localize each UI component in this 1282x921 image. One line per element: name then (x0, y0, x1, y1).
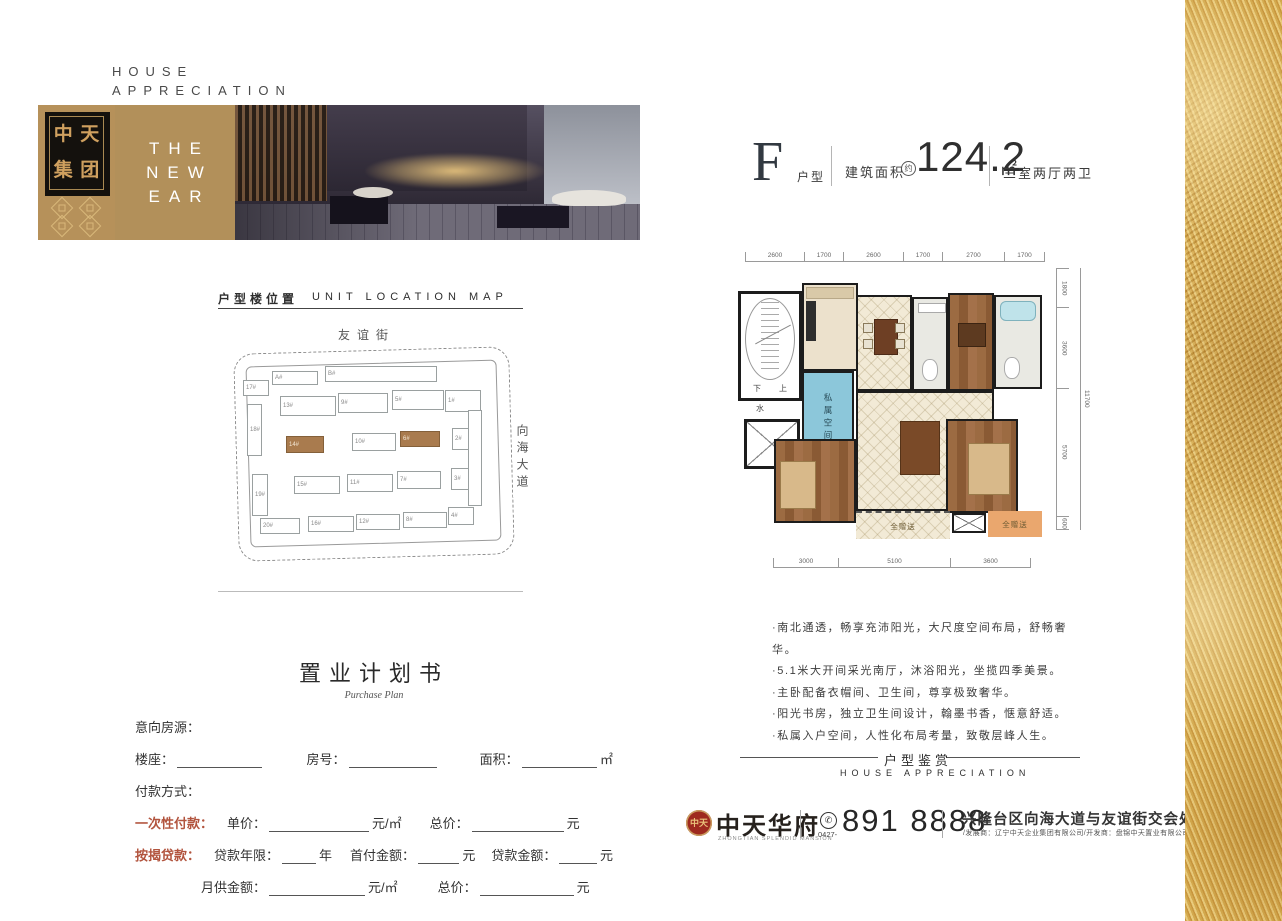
loan-amount-label: 贷款金额： (491, 845, 556, 864)
developer-line: /发展商：辽宁中天企业集团有限公司/开发商：盘锦中天置业有限公司 (963, 828, 1190, 838)
monthly-suffix: 元/㎡ (368, 877, 398, 896)
unit-type-label: 户型 (797, 168, 825, 185)
purchase-plan-form: 置业计划书 Purchase Plan 意向房源： 楼座： 房号： 面积：㎡ 付… (135, 656, 613, 909)
interior-courtyard-photo (235, 105, 640, 240)
feature-item: ·主卧配备衣帽间、卫生间，尊享极致奢华。 (772, 683, 1072, 705)
gold-sculpture-glow (365, 153, 545, 189)
map-building: 18# (247, 404, 262, 456)
approx-circle-icon: 约 (901, 161, 916, 176)
bedroom-left (774, 439, 856, 523)
form-title: 置业计划书 (135, 656, 613, 688)
map-bottom-rule (218, 591, 523, 592)
project-address: 兴隆台区向海大道与友谊街交会处 (962, 808, 1195, 829)
unit-letter: F (752, 134, 783, 190)
master-bedroom (946, 419, 1018, 513)
payment-label: 付款方式： (135, 781, 200, 800)
mortgage-row1: 按揭贷款： 贷款年限：年 首付金额：元 贷款金额：元 (135, 845, 613, 864)
down-payment-suffix: 元 (462, 845, 475, 864)
brand-seal-icon: 中天 (686, 810, 712, 836)
banner-line: NEW (137, 163, 213, 183)
map-building: 4# (448, 507, 474, 525)
banner-line: THE (140, 139, 210, 159)
map-building: 19# (252, 474, 268, 516)
site-map: 17# A# B# 1# 13# 9# 5# 18# 14# 10# 6# 2#… (236, 350, 512, 558)
loan-years-field (282, 850, 316, 864)
map-building: 5# (392, 390, 444, 410)
form-subtitle: Purchase Plan (135, 690, 613, 701)
area-field (522, 754, 597, 768)
divider-line (947, 757, 1080, 758)
house-appreciation-heading: HOUSE APPRECIATION (112, 62, 292, 100)
table-silhouette (497, 206, 569, 228)
phone-area-code: 0427- (818, 830, 837, 839)
dining-room (856, 295, 912, 391)
map-building: 9# (338, 393, 388, 413)
map-building-unlabeled (468, 410, 482, 506)
window-box (952, 513, 986, 533)
monthly-field (269, 882, 365, 896)
logo-char: 集 (54, 158, 73, 184)
bathroom (912, 297, 948, 391)
mortgage-label: 按揭贷款： (135, 845, 200, 864)
total2-field (480, 882, 574, 896)
unit-row: 楼座： 房号： 面积：㎡ (135, 749, 613, 768)
divider-line (740, 757, 878, 758)
map-building-highlighted: 6# (400, 431, 440, 447)
area-suffix: ㎡ (600, 749, 613, 768)
map-building: A# (272, 371, 318, 385)
floorplan-top-dimensions: 2600 1700 2600 1700 2700 1700 (745, 252, 1045, 262)
area-prefix-label: 建筑面积 (845, 162, 905, 181)
floorplan-right-dimensions: 1800 3600 5700 600 (1056, 268, 1069, 530)
feature-list: ·南北通透，畅享充沛阳光，大尺度空间布局，舒畅奢华。 ·5.1米大开间采光南厅，… (772, 618, 1072, 747)
unit-price-field (269, 818, 369, 832)
footer-divider (942, 810, 943, 838)
master-bathroom (994, 295, 1042, 389)
loan-years-suffix: 年 (319, 845, 332, 864)
balcony-left: 全赠送 (856, 511, 950, 539)
map-building: 10# (352, 433, 396, 451)
map-building: 11# (347, 474, 393, 492)
water-label: 水 (756, 403, 764, 414)
building-label: 楼座： (135, 749, 174, 768)
divider (831, 146, 832, 186)
street-label-youyi: 友谊街 (338, 326, 395, 343)
loan-amount-field (559, 850, 597, 864)
unit-price-label: 单价： (227, 813, 266, 832)
street-label-xianghai: 向海大道 (514, 424, 531, 492)
total-price-label: 总价： (430, 813, 469, 832)
map-building: 16# (308, 516, 354, 532)
area-label: 面积： (480, 749, 519, 768)
gold-texture-strip (1185, 0, 1282, 921)
payment-row: 付款方式： (135, 781, 613, 800)
stairwell: 下 上 (738, 291, 802, 401)
map-title-cn: 户型楼位置 (218, 290, 298, 307)
down-payment-label: 首付金额： (350, 845, 415, 864)
map-title-en: UNIT LOCATION MAP (312, 291, 508, 303)
rooms-description: 三室两厅两卫 (1003, 163, 1093, 182)
feature-item: ·5.1米大开间采光南厅，沐浴阳光，坐揽四季美景。 (772, 661, 1072, 683)
map-building: 8# (403, 512, 447, 528)
brand-subtitle: ZHONGTIAN SPLENDID MANSION (718, 836, 833, 842)
map-building: 1# (445, 390, 481, 412)
logo-char: 团 (80, 158, 99, 184)
total2-label: 总价： (438, 877, 477, 896)
onetime-row: 一次性付款： 单价：元/㎡ 总价：元 (135, 813, 613, 832)
total-price-suffix: 元 (567, 813, 580, 832)
map-building: 7# (397, 471, 441, 489)
map-title-rule (218, 308, 523, 309)
appreciation-divider-en: HOUSE APPRECIATION (840, 768, 1030, 778)
total2-suffix: 元 (577, 877, 590, 896)
white-bed (552, 190, 626, 206)
intent-row: 意向房源： (135, 717, 613, 736)
stair-up-label: 上 (779, 383, 787, 394)
map-building-highlighted: 14# (286, 436, 324, 453)
stair-down-label: 下 (753, 383, 761, 394)
unit-price-suffix: 元/㎡ (372, 813, 402, 832)
banner-line: EAR (140, 187, 211, 207)
map-building: 15# (294, 476, 340, 494)
map-building: 12# (356, 514, 400, 530)
study-room (948, 293, 994, 391)
feature-item: ·私属入户空间，人性化布局考量，致敬层峰人生。 (772, 726, 1072, 748)
private-space-label: 私属空间 (822, 393, 834, 443)
kitchen (802, 283, 858, 371)
floorplan-total-dimension: 11700 (1080, 268, 1093, 530)
map-building: 20# (260, 518, 300, 534)
mortgage-row2: 月供金额：元/㎡ 总价：元 (201, 877, 613, 896)
appreciation-divider-cn: 户型鉴赏 (884, 750, 952, 769)
feature-item: ·阳光书房，独立卫生间设计，翰墨书香，惬意舒适。 (772, 704, 1072, 726)
lattice-pattern-icon (48, 199, 104, 235)
gift-label: 全赠送 (890, 521, 916, 532)
building-field (177, 754, 261, 768)
room-field (349, 754, 437, 768)
total-price-field (472, 818, 564, 832)
floor-plan: 下 上 水 私属空间 全赠送 全赠送 (738, 283, 1044, 545)
gift-label: 全赠送 (1002, 519, 1028, 530)
logo-black-square: 中 天 集 团 (45, 112, 110, 196)
divider (989, 146, 990, 186)
white-cushion (353, 187, 393, 198)
intent-label: 意向房源： (135, 717, 200, 736)
down-payment-field (418, 850, 459, 864)
logo-char: 天 (80, 122, 99, 148)
phone-icon: ✆ (820, 812, 837, 829)
footer-divider (800, 810, 801, 838)
the-new-ear-banner: THE NEW EAR (115, 105, 235, 240)
map-building: 13# (280, 396, 336, 416)
map-building: B# (325, 366, 437, 382)
loan-amount-suffix: 元 (600, 845, 613, 864)
feature-item: ·南北通透，畅享充沛阳光，大尺度空间布局，舒畅奢华。 (772, 618, 1072, 661)
logo-char: 中 (54, 122, 73, 148)
wood-slat-wall (235, 105, 327, 201)
monthly-label: 月供金额： (201, 877, 266, 896)
map-building: 17# (243, 380, 269, 396)
loan-years-label: 贷款年限： (214, 845, 279, 864)
wood-deck-floor (235, 204, 640, 240)
balcony-right: 全赠送 (988, 511, 1042, 537)
floorplan-bottom-dimensions: 3000 5100 3600 (773, 558, 1031, 568)
table-silhouette (330, 196, 388, 224)
room-label: 房号： (307, 749, 346, 768)
onetime-label: 一次性付款： (135, 813, 213, 832)
zhongtian-group-logo: 中 天 集 团 (38, 105, 115, 240)
